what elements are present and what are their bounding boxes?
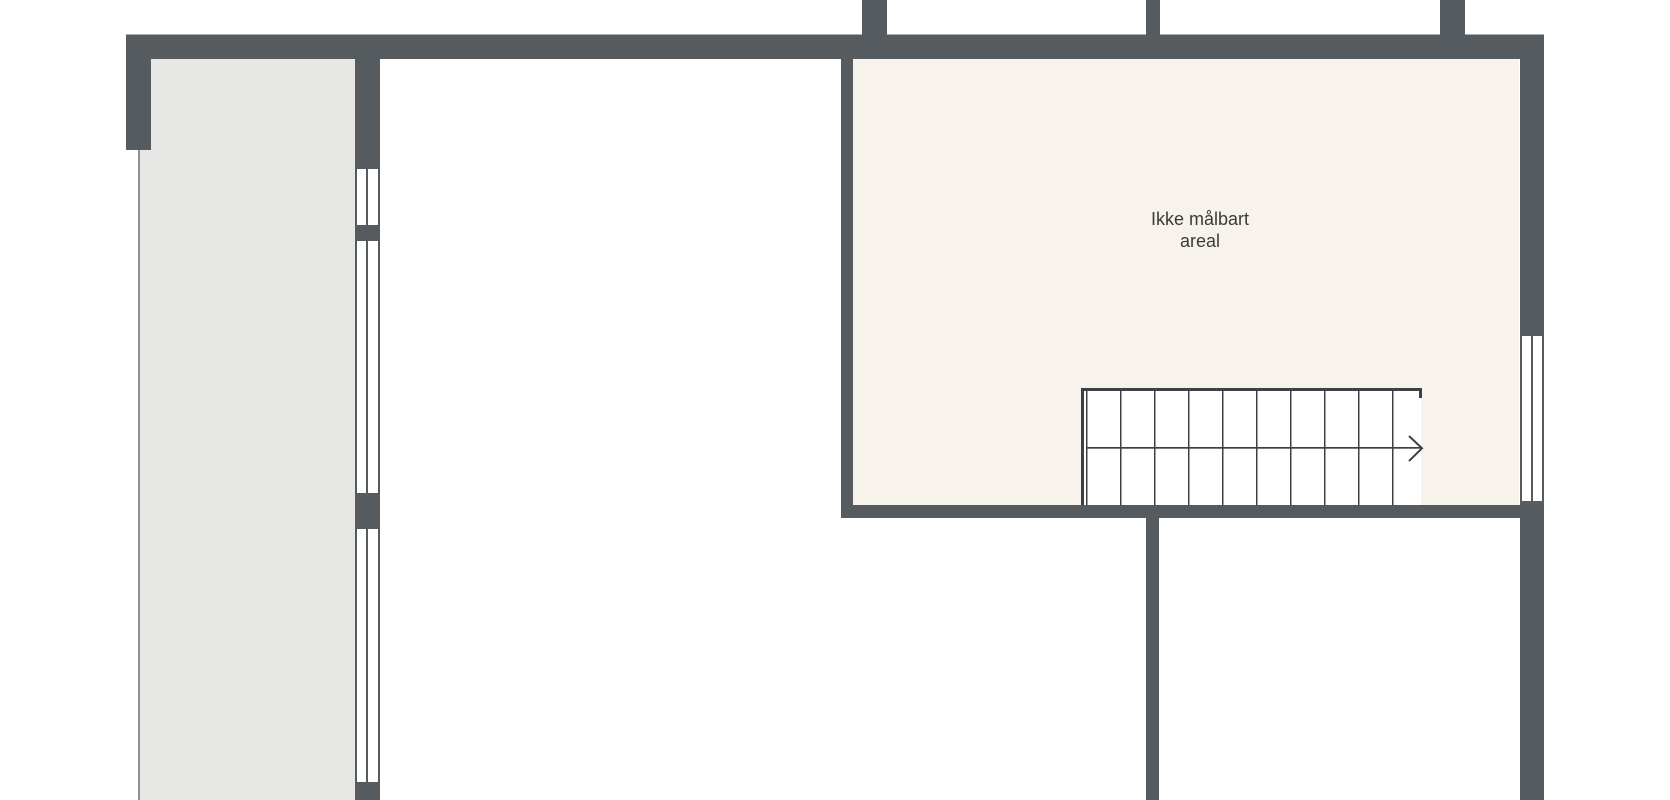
svg-text:areal: areal	[1180, 231, 1220, 251]
svg-text:Ikke målbart: Ikke målbart	[1151, 209, 1249, 229]
